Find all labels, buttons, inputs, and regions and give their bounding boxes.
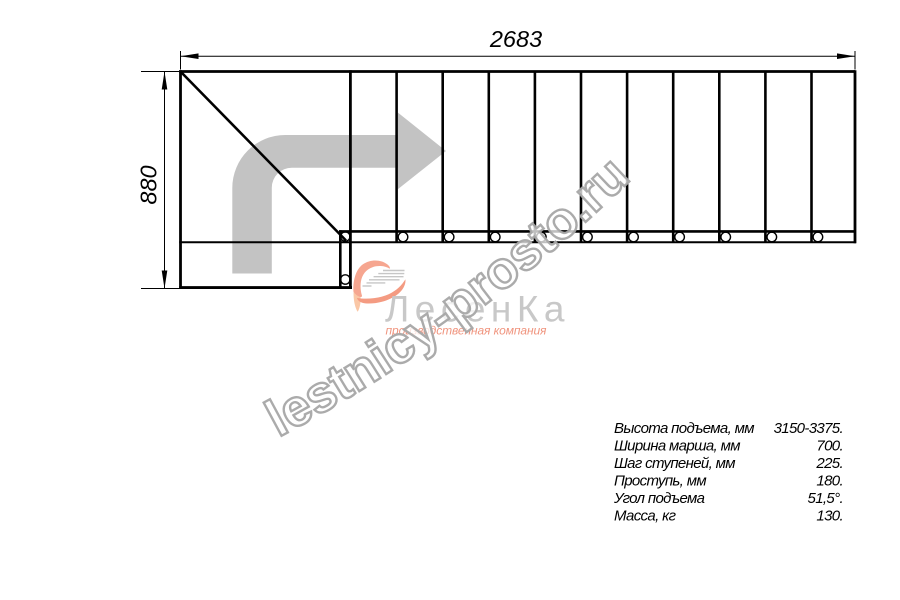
svg-text:Ширина марша, мм: Ширина марша, мм	[614, 438, 740, 455]
svg-text:180.: 180.	[816, 473, 843, 490]
svg-text:3150-3375.: 3150-3375.	[774, 420, 843, 437]
svg-text:Проступь, мм: Проступь, мм	[614, 473, 706, 490]
svg-text:225.: 225.	[815, 455, 843, 472]
svg-text:880: 880	[136, 165, 162, 204]
svg-text:700.: 700.	[816, 438, 843, 455]
svg-text:Угол подъема: Угол подъема	[613, 490, 705, 507]
svg-text:Высота подъема, мм: Высота подъема, мм	[614, 420, 754, 437]
svg-text:51,5°.: 51,5°.	[808, 490, 843, 507]
svg-text:Шаг ступеней, мм: Шаг ступеней, мм	[614, 455, 735, 472]
svg-text:130.: 130.	[816, 508, 843, 525]
svg-text:Масса, кг: Масса, кг	[614, 508, 677, 525]
svg-text:2683: 2683	[489, 26, 542, 52]
